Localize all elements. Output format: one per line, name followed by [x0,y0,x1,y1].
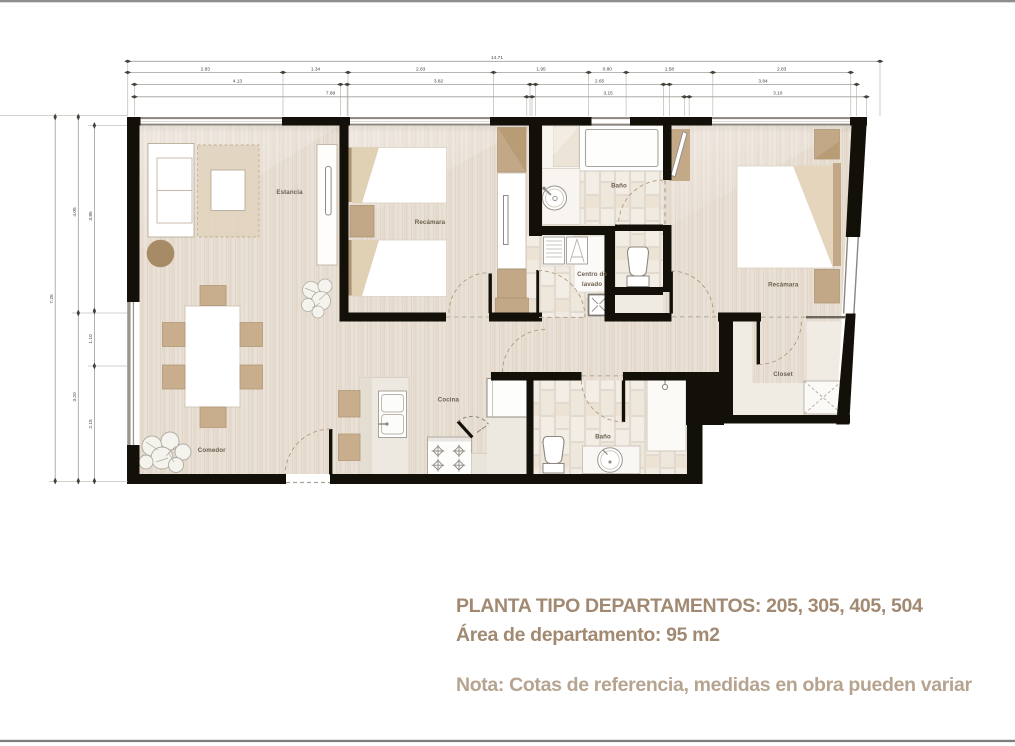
svg-text:2.83: 2.83 [416,66,426,72]
svg-text:Estancia: Estancia [276,189,303,196]
svg-text:Cocina: Cocina [438,397,460,404]
svg-text:PLANTA TIPO DEPARTAMENTOS: 205: PLANTA TIPO DEPARTAMENTOS: 205, 305, 405… [456,595,923,617]
svg-text:2.15: 2.15 [88,419,94,429]
svg-text:2.83: 2.83 [777,66,787,72]
svg-text:lavado: lavado [582,281,602,288]
svg-text:7.25: 7.25 [49,294,55,304]
svg-text:4.13: 4.13 [233,78,243,84]
svg-text:Baño: Baño [611,183,627,190]
svg-text:1.34: 1.34 [311,66,321,72]
svg-text:1.58: 1.58 [665,66,675,72]
svg-text:Nota: Cotas de referencia, med: Nota: Cotas de referencia, medidas en ob… [456,674,972,696]
svg-text:14.71: 14.71 [491,55,503,61]
svg-text:Área de departamento: 95 m2: Área de departamento: 95 m2 [456,623,720,646]
svg-text:3.82: 3.82 [434,78,444,84]
svg-text:2.65: 2.65 [595,78,605,84]
svg-text:Centro de: Centro de [577,271,607,278]
svg-text:Comedor: Comedor [198,447,226,454]
svg-text:7.88: 7.88 [326,91,336,97]
svg-text:1.10: 1.10 [88,334,94,344]
svg-text:3.84: 3.84 [758,78,768,84]
svg-text:3.10: 3.10 [773,91,783,97]
svg-text:2.83: 2.83 [201,66,211,72]
svg-text:Recámara: Recámara [415,219,446,226]
svg-text:1.95: 1.95 [536,66,546,72]
svg-text:Baño: Baño [595,434,611,441]
svg-text:4.05: 4.05 [72,207,78,217]
svg-text:3.85: 3.85 [88,211,94,221]
svg-text:Recámara: Recámara [768,282,799,289]
svg-text:Closet: Closet [773,371,793,378]
svg-text:3.15: 3.15 [604,91,614,97]
svg-text:0.80: 0.80 [603,66,613,72]
svg-text:3.20: 3.20 [72,392,78,402]
